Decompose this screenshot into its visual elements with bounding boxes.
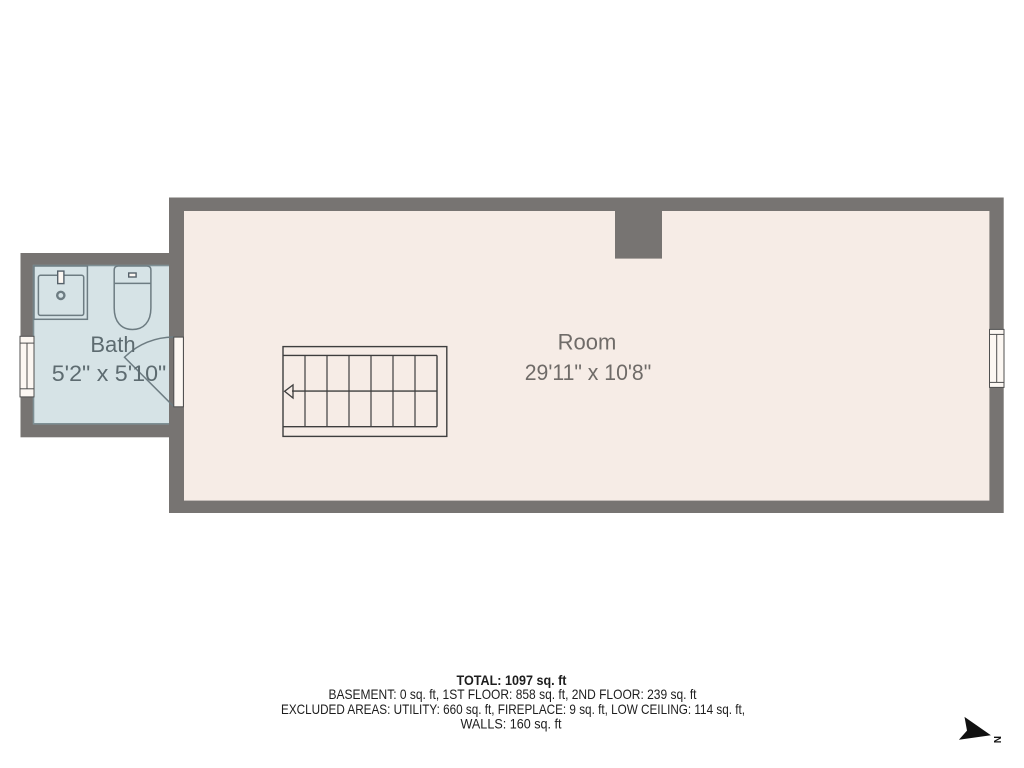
svg-text:Room: Room (558, 330, 617, 355)
svg-text:WALLS: 160 sq. ft: WALLS: 160 sq. ft (461, 716, 562, 731)
svg-text:BASEMENT: 0 sq. ft, 1ST FLOOR:: BASEMENT: 0 sq. ft, 1ST FLOOR: 858 sq. f… (329, 687, 697, 702)
svg-text:TOTAL: 1097 sq. ft: TOTAL: 1097 sq. ft (457, 673, 567, 688)
svg-text:EXCLUDED AREAS: UTILITY: 660 s: EXCLUDED AREAS: UTILITY: 660 sq. ft, FIR… (281, 702, 745, 717)
svg-text:N: N (991, 736, 1002, 743)
svg-text:Bath: Bath (90, 332, 135, 357)
svg-text:29'11" x 10'8": 29'11" x 10'8" (525, 360, 652, 385)
svg-text:5'2" x 5'10": 5'2" x 5'10" (52, 361, 167, 386)
